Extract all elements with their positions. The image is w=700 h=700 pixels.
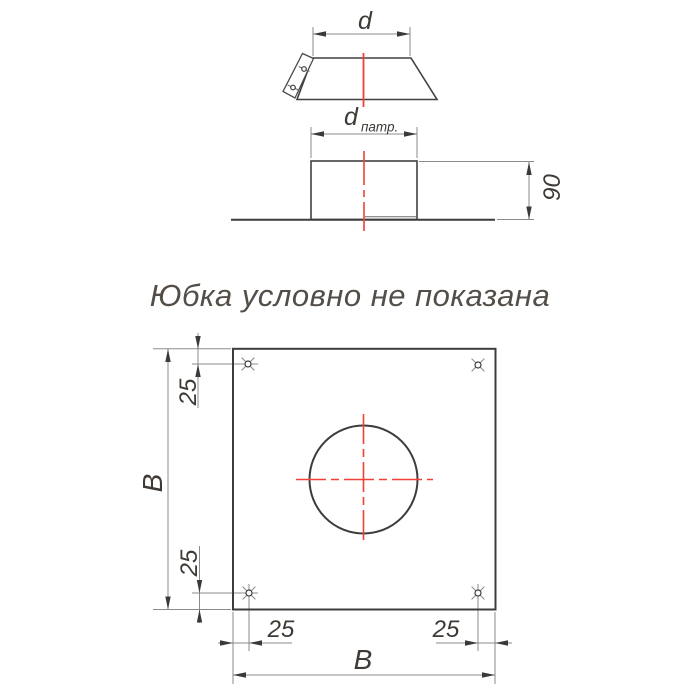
- rivet-hole: [302, 67, 307, 72]
- dim-label-25-right: 25: [432, 616, 460, 643]
- arrowhead: [233, 672, 246, 677]
- dim-label-b-left: B: [137, 474, 168, 493]
- dim-90: 90: [419, 162, 566, 220]
- dim-25-left: 25: [218, 616, 295, 646]
- dim-b-left: B: [137, 349, 171, 610]
- arrowhead: [220, 640, 233, 645]
- arrowhead: [249, 640, 262, 645]
- dim-label-d-patr-sub: патр.: [361, 120, 398, 135]
- arrowhead: [397, 31, 410, 36]
- dim-label-d: d: [358, 7, 373, 35]
- rivet-hole: [291, 85, 296, 90]
- arrowhead: [404, 131, 417, 136]
- dim-d: d: [313, 7, 410, 56]
- arrowhead: [165, 349, 170, 362]
- dim-25-right: 25: [432, 616, 512, 646]
- plan-view: B 25 25 25 25: [137, 333, 512, 684]
- arrowhead: [311, 131, 324, 136]
- arrowhead: [165, 597, 170, 610]
- dim-label-d-patr: d: [344, 103, 359, 131]
- skirt-top-view: d: [283, 7, 437, 100]
- dim-label-b-bottom: B: [354, 644, 373, 675]
- arrowhead: [526, 162, 531, 175]
- dim-d-patr: d патр.: [311, 103, 417, 158]
- arrowhead: [195, 364, 200, 377]
- dim-label-25-bottom: 25: [176, 549, 203, 577]
- arrowhead: [526, 207, 531, 220]
- arrowhead: [495, 640, 508, 645]
- drawing-note: Юбка условно не показана: [150, 278, 550, 313]
- front-view: d патр. 90: [231, 103, 566, 220]
- skirt-outline: [297, 58, 437, 100]
- arrowhead: [313, 31, 326, 36]
- arrowhead: [197, 610, 202, 623]
- dim-25-bottom: 25: [176, 546, 203, 623]
- dim-label-90: 90: [539, 174, 566, 201]
- dim-label-25-left: 25: [267, 616, 295, 643]
- dim-25-top: 25: [175, 333, 202, 408]
- arrowhead: [465, 640, 478, 645]
- arrowhead: [195, 336, 200, 349]
- arrowhead: [197, 580, 202, 593]
- dim-label-25-top: 25: [175, 378, 202, 406]
- technical-drawing: d d патр.: [0, 0, 700, 700]
- corner-hole-top-right: [472, 359, 485, 372]
- dim-b-bottom: B: [233, 644, 495, 678]
- drawing-canvas: d d патр.: [0, 0, 700, 700]
- arrowhead: [482, 672, 495, 677]
